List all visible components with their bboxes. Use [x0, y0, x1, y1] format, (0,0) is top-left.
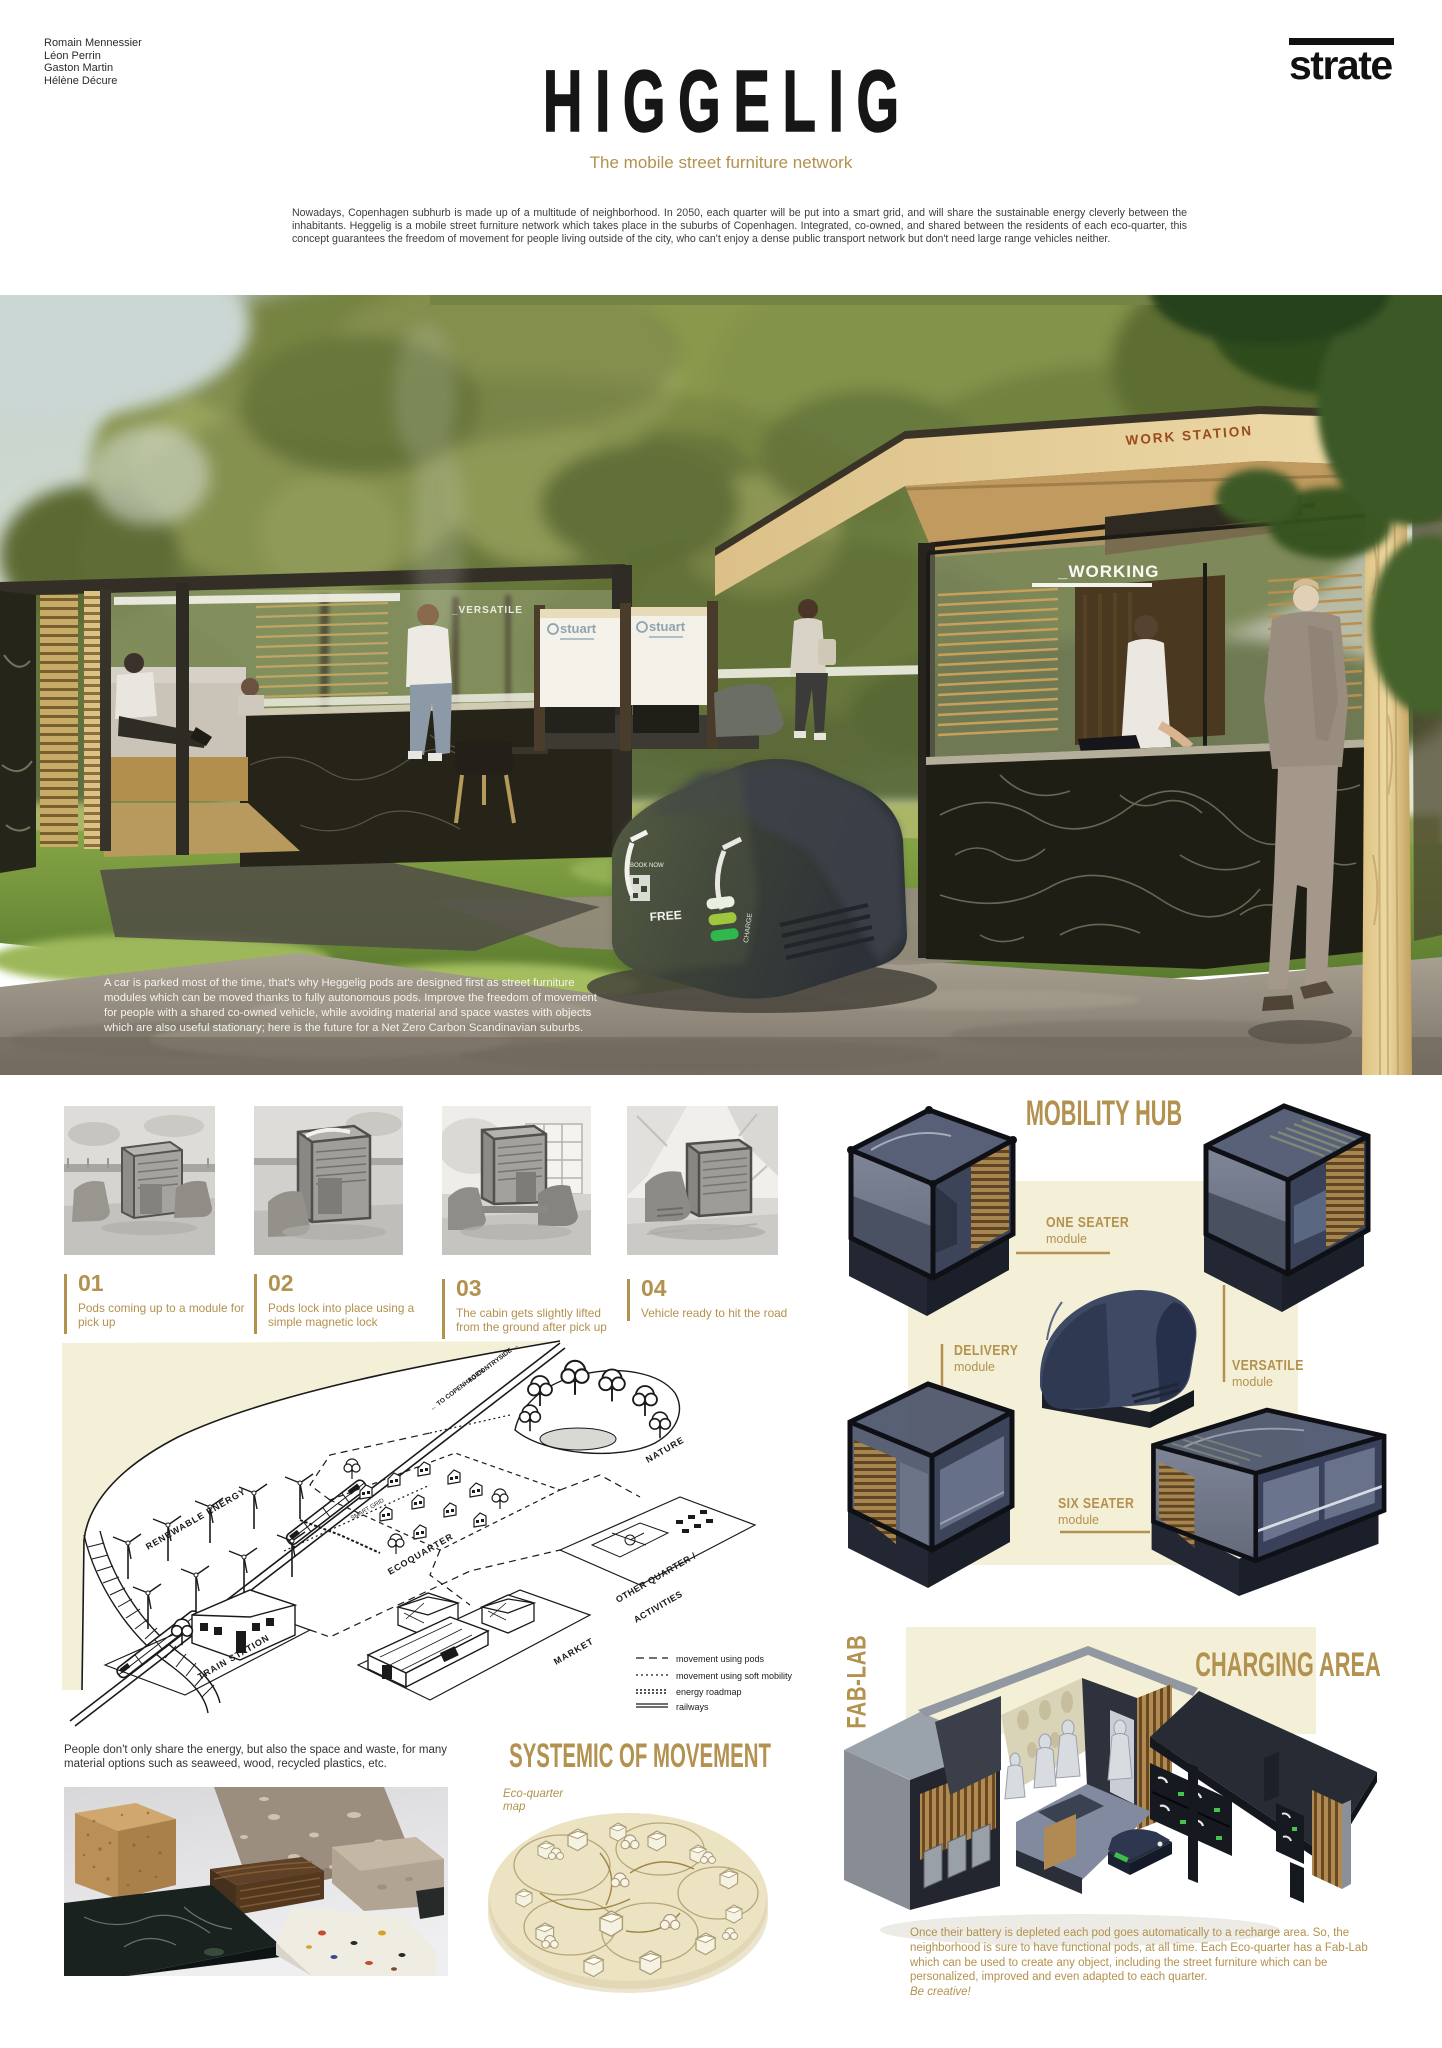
svg-text:OTHER QUARTER /: OTHER QUARTER / — [614, 1551, 698, 1605]
svg-text:stuart: stuart — [649, 619, 686, 634]
svg-text:FREE: FREE — [649, 908, 682, 924]
svg-text:BOOK NOW: BOOK NOW — [630, 863, 664, 869]
svg-text:for people with a shared co-ow: for people with a shared co-owned vehicl… — [104, 1007, 592, 1019]
svg-text:NATURE: NATURE — [644, 1435, 686, 1465]
svg-text:which are also useful stationa: which are also useful stationary; here i… — [103, 1022, 583, 1034]
svg-text:RENEWABLE ENERGY: RENEWABLE ENERGY — [144, 1486, 248, 1552]
svg-text:modules which can be moved tha: modules which can be moved thanks to ful… — [104, 992, 598, 1004]
svg-text:ACTIVITIES: ACTIVITIES — [632, 1589, 684, 1625]
svg-text:stuart: stuart — [560, 621, 597, 636]
svg-text:_VERSATILE: _VERSATILE — [451, 605, 523, 616]
svg-text:_WORKING: _WORKING — [1057, 562, 1160, 581]
svg-text:A car is parked most of the ti: A car is parked most of the time, that's… — [104, 977, 575, 989]
